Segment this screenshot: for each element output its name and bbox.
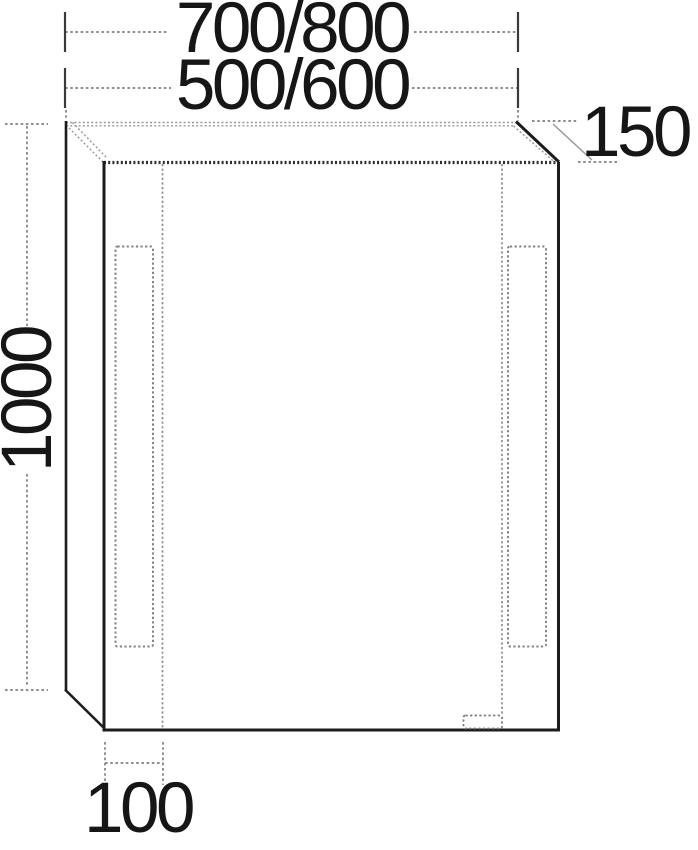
drawing-canvas: 700/800 500/600 1000 150 (0, 0, 698, 850)
cabinet-top-right-chamfer (516, 122, 559, 163)
door-hinge-detail (464, 716, 503, 729)
mirror-cabinet (65, 121, 560, 730)
cabinet-top-right-chamfer-inner (514, 126, 555, 162)
cabinet-top-left-chamfer (66, 125, 103, 162)
cabinet-top-left-chamfer-inner (73, 123, 107, 158)
dimension-offset-label: 100 (84, 769, 193, 848)
dimension-depth-label: 150 (581, 93, 690, 172)
dimension-height-label: 1000 (0, 327, 67, 472)
dimension-offset: 100 (84, 742, 193, 848)
dimension-inner-width-label: 500/600 (176, 46, 409, 125)
technical-drawing: 700/800 500/600 1000 150 (0, 0, 698, 850)
led-light-strip-left (116, 247, 154, 647)
dimension-inner-width: 500/600 (65, 46, 518, 125)
dimension-height: 1000 (0, 124, 67, 690)
led-light-strip-right (508, 247, 546, 647)
cabinet-bottom-chamfer-edge (65, 690, 104, 728)
